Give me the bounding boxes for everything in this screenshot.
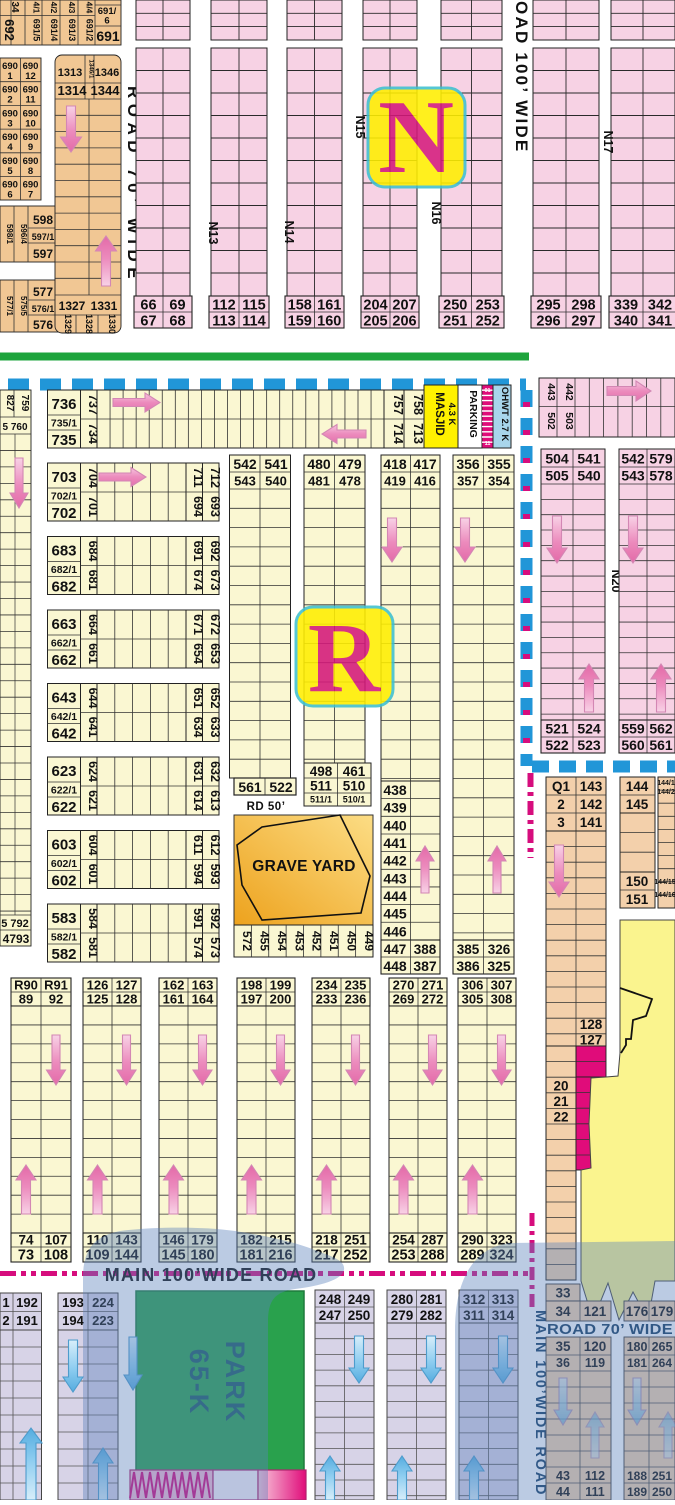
svg-text:112: 112 <box>212 298 235 314</box>
svg-text:7: 7 <box>28 190 33 201</box>
svg-text:12: 12 <box>25 71 36 82</box>
svg-text:193: 193 <box>62 1295 84 1310</box>
svg-text:1346/1: 1346/1 <box>88 60 95 79</box>
svg-text:511: 511 <box>310 779 332 794</box>
svg-text:643: 643 <box>51 690 76 707</box>
svg-text:249: 249 <box>348 1292 371 1307</box>
svg-text:692: 692 <box>208 541 222 562</box>
svg-text:127: 127 <box>580 1033 603 1048</box>
svg-text:578: 578 <box>649 468 673 484</box>
svg-text:388: 388 <box>414 942 437 957</box>
svg-text:342: 342 <box>648 298 672 314</box>
svg-text:164: 164 <box>192 992 214 1007</box>
svg-text:703: 703 <box>51 469 76 486</box>
svg-text:419: 419 <box>384 474 406 489</box>
svg-text:442: 442 <box>563 383 575 401</box>
svg-text:576/1: 576/1 <box>32 304 55 314</box>
svg-text:673: 673 <box>208 570 222 591</box>
svg-text:GRAVE YARD: GRAVE YARD <box>252 858 356 875</box>
svg-text:452: 452 <box>310 931 324 951</box>
svg-text:163: 163 <box>192 978 214 993</box>
svg-text:162: 162 <box>163 978 185 993</box>
svg-text:89: 89 <box>19 992 33 1007</box>
svg-text:577/1: 577/1 <box>5 296 14 317</box>
svg-text:218: 218 <box>315 1233 338 1248</box>
svg-text:416: 416 <box>414 474 436 489</box>
svg-text:158: 158 <box>288 298 312 314</box>
svg-text:479: 479 <box>338 456 362 472</box>
svg-text:691: 691 <box>96 28 120 44</box>
svg-text:297: 297 <box>571 314 595 330</box>
svg-text:250: 250 <box>348 1308 371 1323</box>
svg-text:663: 663 <box>51 616 76 633</box>
svg-text:288: 288 <box>420 1248 444 1264</box>
svg-text:252: 252 <box>476 314 500 330</box>
svg-text:449: 449 <box>362 931 376 951</box>
svg-text:252: 252 <box>343 1248 367 1264</box>
svg-text:575/5: 575/5 <box>19 296 28 317</box>
svg-text:204: 204 <box>363 298 387 314</box>
svg-text:445: 445 <box>383 906 407 922</box>
svg-text:1: 1 <box>2 1295 9 1310</box>
svg-text:8: 8 <box>28 166 33 177</box>
svg-text:161: 161 <box>317 298 341 314</box>
svg-text:197: 197 <box>241 992 263 1007</box>
svg-text:11: 11 <box>25 95 36 106</box>
svg-text:693: 693 <box>208 496 222 517</box>
svg-text:543: 543 <box>234 474 256 489</box>
svg-text:613: 613 <box>208 790 222 811</box>
svg-text:254: 254 <box>392 1233 415 1248</box>
svg-text:151: 151 <box>626 892 649 907</box>
svg-text:126: 126 <box>87 978 109 993</box>
svg-text:354: 354 <box>488 474 510 489</box>
svg-text:307: 307 <box>491 978 513 993</box>
svg-text:250: 250 <box>443 298 467 314</box>
svg-text:582: 582 <box>51 946 76 963</box>
svg-text:1331: 1331 <box>91 299 118 313</box>
svg-text:150: 150 <box>626 874 649 889</box>
svg-text:127: 127 <box>116 978 138 993</box>
svg-text:561: 561 <box>238 779 262 795</box>
svg-text:757: 757 <box>391 394 405 415</box>
svg-text:385: 385 <box>457 942 480 957</box>
svg-text:21: 21 <box>553 1094 569 1109</box>
svg-text:691/3: 691/3 <box>67 19 77 42</box>
svg-text:592: 592 <box>208 908 222 929</box>
svg-text:758: 758 <box>411 394 425 415</box>
svg-text:633: 633 <box>208 717 222 738</box>
svg-text:827: 827 <box>4 395 15 412</box>
svg-text:478: 478 <box>339 474 361 489</box>
svg-text:455: 455 <box>258 931 272 951</box>
svg-text:450: 450 <box>344 931 358 951</box>
svg-text:144/16: 144/16 <box>654 892 675 899</box>
svg-text:559: 559 <box>621 721 645 737</box>
svg-text:662: 662 <box>51 652 76 669</box>
svg-text:236: 236 <box>345 992 367 1007</box>
svg-text:417: 417 <box>413 456 437 472</box>
svg-text:251: 251 <box>344 1233 367 1248</box>
svg-text:01: 01 <box>484 388 490 394</box>
svg-text:199: 199 <box>270 978 292 993</box>
svg-text:510/1: 510/1 <box>343 795 366 805</box>
svg-text:1313: 1313 <box>58 67 82 79</box>
svg-text:642/1: 642/1 <box>51 711 77 723</box>
svg-text:735: 735 <box>51 432 76 449</box>
svg-text:541: 541 <box>577 451 601 467</box>
svg-text:503: 503 <box>563 412 575 430</box>
svg-text:418: 418 <box>383 456 407 472</box>
svg-text:562: 562 <box>649 721 673 737</box>
svg-text:597: 597 <box>33 247 53 261</box>
svg-text:357: 357 <box>457 474 479 489</box>
svg-text:2: 2 <box>7 95 12 106</box>
svg-text:5 760: 5 760 <box>2 422 27 433</box>
svg-text:692: 692 <box>2 19 17 41</box>
svg-text:1328: 1328 <box>84 314 94 334</box>
svg-text:22: 22 <box>553 1110 568 1125</box>
svg-text:ROAD 100’ WIDE: ROAD 100’ WIDE <box>512 0 531 153</box>
svg-text:3: 3 <box>557 815 565 830</box>
svg-text:125: 125 <box>87 992 109 1007</box>
svg-text:207: 207 <box>392 298 416 314</box>
svg-text:691/2: 691/2 <box>85 19 95 42</box>
svg-text:11: 11 <box>485 441 491 447</box>
svg-text:653: 653 <box>208 643 222 664</box>
svg-text:598: 598 <box>33 213 53 227</box>
svg-text:4/1: 4/1 <box>32 2 42 14</box>
svg-text:281: 281 <box>420 1292 443 1307</box>
svg-text:6: 6 <box>104 16 109 27</box>
svg-text:672: 672 <box>208 614 222 635</box>
svg-text:511/1: 511/1 <box>310 795 332 805</box>
svg-text:540: 540 <box>577 468 601 484</box>
svg-text:92: 92 <box>49 992 63 1007</box>
svg-text:593: 593 <box>208 864 222 885</box>
svg-text:542: 542 <box>621 451 645 467</box>
svg-text:502: 502 <box>545 412 557 430</box>
svg-text:691/5: 691/5 <box>32 19 42 42</box>
svg-text:248: 248 <box>319 1292 342 1307</box>
svg-text:523: 523 <box>577 737 601 753</box>
svg-text:612: 612 <box>208 835 222 856</box>
svg-text:200: 200 <box>270 992 292 1007</box>
svg-text:159: 159 <box>288 314 312 330</box>
svg-text:R91: R91 <box>44 978 68 993</box>
svg-text:Q1: Q1 <box>552 779 571 794</box>
svg-text:3: 3 <box>7 118 12 129</box>
svg-text:1346: 1346 <box>95 67 119 79</box>
svg-text:N17: N17 <box>601 131 615 154</box>
svg-text:142: 142 <box>580 797 603 812</box>
svg-text:603: 603 <box>51 837 76 854</box>
svg-text:505: 505 <box>545 468 569 484</box>
svg-text:198: 198 <box>241 978 263 993</box>
svg-text:6: 6 <box>7 190 12 201</box>
svg-text:192: 192 <box>16 1295 38 1310</box>
svg-text:160: 160 <box>317 314 341 330</box>
svg-text:74: 74 <box>18 1233 34 1248</box>
svg-text:1329: 1329 <box>63 314 73 334</box>
svg-text:341: 341 <box>648 314 672 330</box>
svg-text:253: 253 <box>391 1248 415 1264</box>
svg-text:522: 522 <box>545 737 569 753</box>
svg-text:128: 128 <box>116 992 138 1007</box>
svg-text:67: 67 <box>140 314 156 330</box>
svg-text:759: 759 <box>19 395 30 412</box>
svg-text:5: 5 <box>7 166 13 177</box>
svg-text:340: 340 <box>614 314 638 330</box>
svg-text:280: 280 <box>391 1292 414 1307</box>
svg-text:582/1: 582/1 <box>51 932 77 944</box>
svg-text:194: 194 <box>62 1313 84 1328</box>
svg-text:442: 442 <box>383 853 407 869</box>
svg-text:113: 113 <box>212 314 235 330</box>
svg-text:702: 702 <box>51 505 76 522</box>
svg-text:144/1: 144/1 <box>657 780 675 787</box>
svg-text:521: 521 <box>545 721 569 737</box>
svg-text:443: 443 <box>383 870 407 886</box>
svg-text:MASJID: MASJID <box>433 392 445 435</box>
svg-text:622: 622 <box>51 799 76 816</box>
svg-text:4.3 K: 4.3 K <box>446 403 457 426</box>
svg-text:66: 66 <box>140 298 156 314</box>
svg-text:662/1: 662/1 <box>51 638 77 650</box>
svg-text:251: 251 <box>443 314 467 330</box>
svg-text:68: 68 <box>169 314 185 330</box>
svg-text:623: 623 <box>51 763 76 780</box>
svg-text:144/15: 144/15 <box>654 879 675 886</box>
svg-text:702/1: 702/1 <box>51 491 77 503</box>
svg-text:N15: N15 <box>353 116 367 139</box>
svg-text:4: 4 <box>7 142 13 153</box>
svg-text:298: 298 <box>571 298 595 314</box>
svg-text:355: 355 <box>487 456 511 472</box>
svg-text:R: R <box>308 602 382 713</box>
svg-text:602: 602 <box>51 873 76 890</box>
svg-text:561: 561 <box>649 737 673 753</box>
svg-text:4/2: 4/2 <box>49 2 59 14</box>
svg-text:287: 287 <box>421 1233 444 1248</box>
svg-text:448: 448 <box>383 958 407 974</box>
svg-text:736: 736 <box>51 396 76 413</box>
svg-text:543: 543 <box>621 468 645 484</box>
svg-text:270: 270 <box>393 978 415 993</box>
svg-text:PARKING: PARKING <box>467 390 479 438</box>
svg-text:4793: 4793 <box>3 932 30 946</box>
svg-text:191: 191 <box>16 1313 38 1328</box>
svg-text:481: 481 <box>308 474 330 489</box>
svg-text:454: 454 <box>275 931 289 951</box>
svg-text:356: 356 <box>456 456 480 472</box>
svg-text:10: 10 <box>25 118 36 129</box>
svg-text:339: 339 <box>614 298 638 314</box>
svg-text:296: 296 <box>536 314 560 330</box>
svg-text:596/4: 596/4 <box>19 224 28 245</box>
svg-text:2: 2 <box>557 797 565 812</box>
svg-text:OHWT 2.7 K: OHWT 2.7 K <box>499 387 510 442</box>
svg-text:597/1: 597/1 <box>32 232 55 242</box>
svg-text:325: 325 <box>487 958 511 974</box>
svg-text:306: 306 <box>462 978 484 993</box>
svg-text:387: 387 <box>413 958 437 974</box>
svg-text:441: 441 <box>383 835 407 851</box>
svg-text:9: 9 <box>28 142 33 153</box>
svg-text:5 792: 5 792 <box>1 918 29 930</box>
svg-text:524: 524 <box>577 721 601 737</box>
svg-text:1330: 1330 <box>107 314 117 334</box>
svg-text:308: 308 <box>491 992 513 1007</box>
svg-text:1327: 1327 <box>59 299 86 313</box>
svg-text:282: 282 <box>420 1308 443 1323</box>
svg-text:577: 577 <box>33 285 53 299</box>
svg-text:713: 713 <box>411 423 425 444</box>
svg-text:161: 161 <box>163 992 185 1007</box>
svg-text:290: 290 <box>461 1233 484 1248</box>
svg-text:444: 444 <box>383 888 407 904</box>
svg-text:583: 583 <box>51 910 76 927</box>
svg-text:572: 572 <box>240 931 254 951</box>
svg-text:560: 560 <box>621 737 645 753</box>
svg-text:439: 439 <box>383 800 407 816</box>
svg-text:144: 144 <box>626 779 649 794</box>
svg-text:N: N <box>378 78 454 195</box>
svg-text:480: 480 <box>307 456 331 472</box>
svg-text:128: 128 <box>580 1017 603 1032</box>
svg-text:1344: 1344 <box>91 83 121 98</box>
svg-text:272: 272 <box>422 992 444 1007</box>
svg-text:235: 235 <box>345 978 367 993</box>
svg-text:R90: R90 <box>14 978 38 993</box>
svg-text:453: 453 <box>292 931 306 951</box>
svg-text:682/1: 682/1 <box>51 564 77 576</box>
svg-text:602/1: 602/1 <box>51 858 77 870</box>
svg-text:2: 2 <box>2 1313 9 1328</box>
svg-text:4/3: 4/3 <box>67 2 77 14</box>
svg-text:579: 579 <box>649 451 673 467</box>
svg-text:451: 451 <box>327 931 341 951</box>
svg-text:145: 145 <box>626 797 649 812</box>
svg-text:438: 438 <box>383 782 407 798</box>
svg-text:271: 271 <box>422 978 444 993</box>
svg-text:N14: N14 <box>282 221 296 244</box>
svg-text:622/1: 622/1 <box>51 785 77 797</box>
svg-text:510: 510 <box>343 779 366 794</box>
svg-text:N13: N13 <box>206 222 220 245</box>
svg-text:576: 576 <box>33 318 53 332</box>
svg-text:34: 34 <box>9 1 20 13</box>
svg-text:446: 446 <box>383 923 407 939</box>
svg-text:652: 652 <box>208 688 222 709</box>
svg-text:386: 386 <box>456 958 480 974</box>
svg-text:144/2: 144/2 <box>657 789 675 796</box>
svg-text:295: 295 <box>536 298 560 314</box>
svg-text:504: 504 <box>545 451 569 467</box>
svg-text:108: 108 <box>44 1248 68 1264</box>
svg-text:1314: 1314 <box>58 83 88 98</box>
svg-text:714: 714 <box>391 423 405 444</box>
svg-text:498: 498 <box>310 764 333 779</box>
svg-text:447: 447 <box>384 942 407 957</box>
svg-text:233: 233 <box>316 992 338 1007</box>
svg-text:735/1: 735/1 <box>51 418 77 430</box>
svg-text:682: 682 <box>51 579 76 596</box>
svg-text:598/1: 598/1 <box>5 224 14 245</box>
svg-text:4/4: 4/4 <box>85 2 95 14</box>
svg-text:234: 234 <box>316 978 338 993</box>
svg-text:RD 50’: RD 50’ <box>247 801 286 813</box>
svg-text:N16: N16 <box>429 202 443 225</box>
svg-text:73: 73 <box>18 1248 34 1264</box>
svg-text:573: 573 <box>208 937 222 958</box>
svg-text:279: 279 <box>391 1308 414 1323</box>
svg-text:1: 1 <box>7 71 13 82</box>
svg-text:20: 20 <box>553 1079 568 1094</box>
svg-text:253: 253 <box>476 298 500 314</box>
svg-text:69: 69 <box>169 298 185 314</box>
svg-text:712: 712 <box>208 467 222 488</box>
svg-text:642: 642 <box>51 726 76 743</box>
svg-text:326: 326 <box>488 942 511 957</box>
svg-text:206: 206 <box>392 314 416 330</box>
svg-text:683: 683 <box>51 543 76 560</box>
svg-text:541: 541 <box>264 456 288 472</box>
svg-text:247: 247 <box>319 1308 342 1323</box>
svg-text:143: 143 <box>580 779 603 794</box>
svg-text:115: 115 <box>242 298 265 314</box>
svg-text:114: 114 <box>242 314 265 330</box>
svg-text:632: 632 <box>208 761 222 782</box>
svg-text:440: 440 <box>383 817 407 833</box>
svg-text:141: 141 <box>580 815 603 830</box>
svg-text:269: 269 <box>393 992 415 1007</box>
svg-text:542: 542 <box>233 456 257 472</box>
svg-text:205: 205 <box>363 314 387 330</box>
svg-text:461: 461 <box>343 764 366 779</box>
svg-text:107: 107 <box>45 1233 68 1248</box>
svg-text:305: 305 <box>462 992 484 1007</box>
svg-text:522: 522 <box>269 779 293 795</box>
svg-text:443: 443 <box>545 383 557 401</box>
svg-text:540: 540 <box>265 474 287 489</box>
svg-text:691/4: 691/4 <box>49 19 59 42</box>
